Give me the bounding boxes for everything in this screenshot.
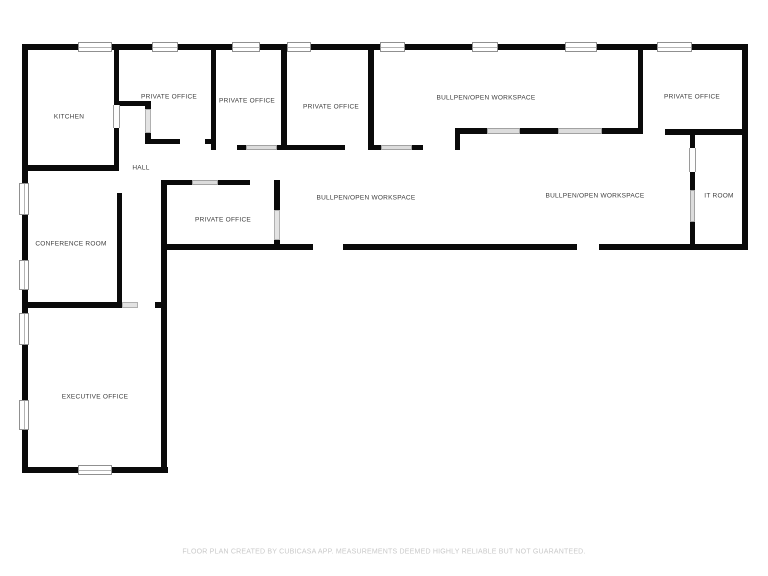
door <box>122 302 138 308</box>
wall-segment <box>274 240 280 250</box>
room-label-conference-room: CONFERENCE ROOM <box>35 241 106 248</box>
window <box>19 400 29 430</box>
wall-segment <box>161 180 167 473</box>
window <box>472 42 498 52</box>
wall-segment <box>690 172 695 190</box>
wall-segment <box>638 50 643 134</box>
wall-segment <box>690 222 695 250</box>
door <box>145 109 151 133</box>
window <box>152 42 178 52</box>
wall-segment <box>22 302 122 308</box>
wall-segment <box>665 129 742 135</box>
wall-segment <box>274 180 280 210</box>
wall-segment <box>742 44 748 250</box>
wall-segment <box>281 50 287 150</box>
wall-segment <box>287 145 345 150</box>
floor-plan: KITCHEN PRIVATE OFFICE PRIVATE OFFICE PR… <box>0 0 768 576</box>
room-label-executive-office: EXECUTIVE OFFICE <box>62 394 128 401</box>
interior-window <box>487 128 520 134</box>
wall-segment <box>218 180 250 185</box>
wall-segment <box>374 145 381 150</box>
room-label-bullpen-right: BULLPEN/OPEN WORKSPACE <box>546 193 645 200</box>
wall-segment <box>161 244 313 250</box>
window <box>657 42 692 52</box>
wall-segment <box>343 244 577 250</box>
door <box>274 210 280 240</box>
wall-segment <box>22 165 119 171</box>
room-label-bullpen-top: BULLPEN/OPEN WORKSPACE <box>437 95 536 102</box>
wall-segment <box>460 128 487 134</box>
window <box>380 42 405 52</box>
room-label-private-office-3: PRIVATE OFFICE <box>303 104 359 111</box>
window <box>19 260 29 290</box>
interior-window <box>690 190 695 222</box>
room-label-hall: HALL <box>132 165 149 172</box>
window <box>78 42 112 52</box>
room-label-kitchen: KITCHEN <box>54 114 84 121</box>
room-label-private-office-middle: PRIVATE OFFICE <box>195 217 251 224</box>
wall-segment <box>155 302 167 308</box>
wall-segment <box>161 180 192 185</box>
interior-window <box>192 180 218 185</box>
window <box>232 42 260 52</box>
interior-window <box>246 145 277 150</box>
wall-segment <box>602 128 638 134</box>
footer-disclaimer: FLOOR PLAN CREATED BY CUBICASA APP. MEAS… <box>182 549 585 556</box>
window <box>19 183 29 215</box>
wall-segment <box>117 193 122 307</box>
wall-segment <box>599 244 748 250</box>
window <box>19 313 29 345</box>
interior-window <box>381 145 412 150</box>
window <box>287 42 311 52</box>
interior-window <box>558 128 602 134</box>
wall-segment <box>690 134 695 148</box>
room-label-bullpen-left: BULLPEN/OPEN WORKSPACE <box>317 195 416 202</box>
wall-segment <box>237 145 246 150</box>
wall-segment <box>412 145 423 150</box>
wall-segment <box>211 50 216 150</box>
window <box>78 465 112 475</box>
window <box>565 42 597 52</box>
room-label-private-office-2: PRIVATE OFFICE <box>219 98 275 105</box>
door <box>113 105 120 128</box>
wall-segment <box>114 50 119 105</box>
floor-plan-page: KITCHEN PRIVATE OFFICE PRIVATE OFFICE PR… <box>0 0 768 576</box>
wall-segment <box>146 139 180 144</box>
room-label-private-office-1: PRIVATE OFFICE <box>141 94 197 101</box>
wall-segment <box>368 50 374 150</box>
wall-segment <box>520 128 558 134</box>
room-label-private-office-top-right: PRIVATE OFFICE <box>664 94 720 101</box>
room-label-it-room: IT ROOM <box>704 193 733 200</box>
door <box>689 148 696 172</box>
